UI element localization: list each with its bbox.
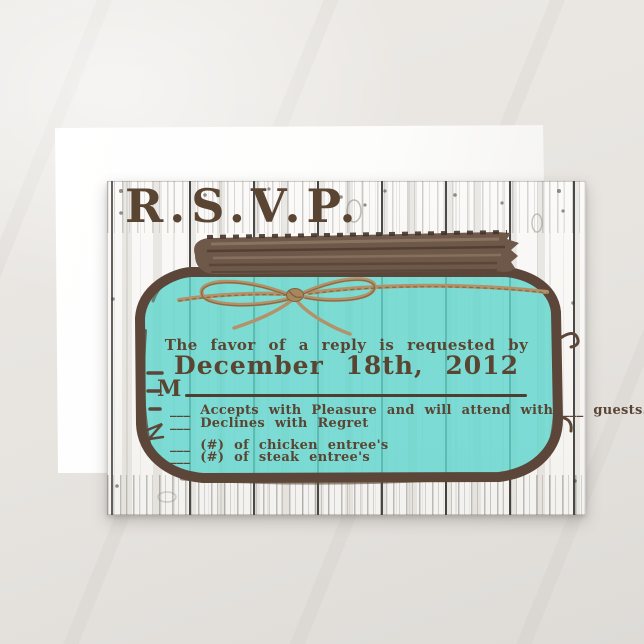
card-title: R.S.V.P. bbox=[125, 183, 362, 229]
name-blank-line bbox=[185, 394, 527, 397]
option-declines: ___ Declines with Regret bbox=[170, 417, 369, 430]
name-prefix: M bbox=[157, 378, 181, 400]
option-steak-entree: ___ (#) of steak entree's bbox=[170, 451, 370, 464]
rsvp-card: R.S.V.P. The favor of a reply is request… bbox=[107, 181, 586, 515]
product-photo-scene: R.S.V.P. The favor of a reply is request… bbox=[0, 0, 644, 644]
jar-lid bbox=[194, 232, 519, 274]
